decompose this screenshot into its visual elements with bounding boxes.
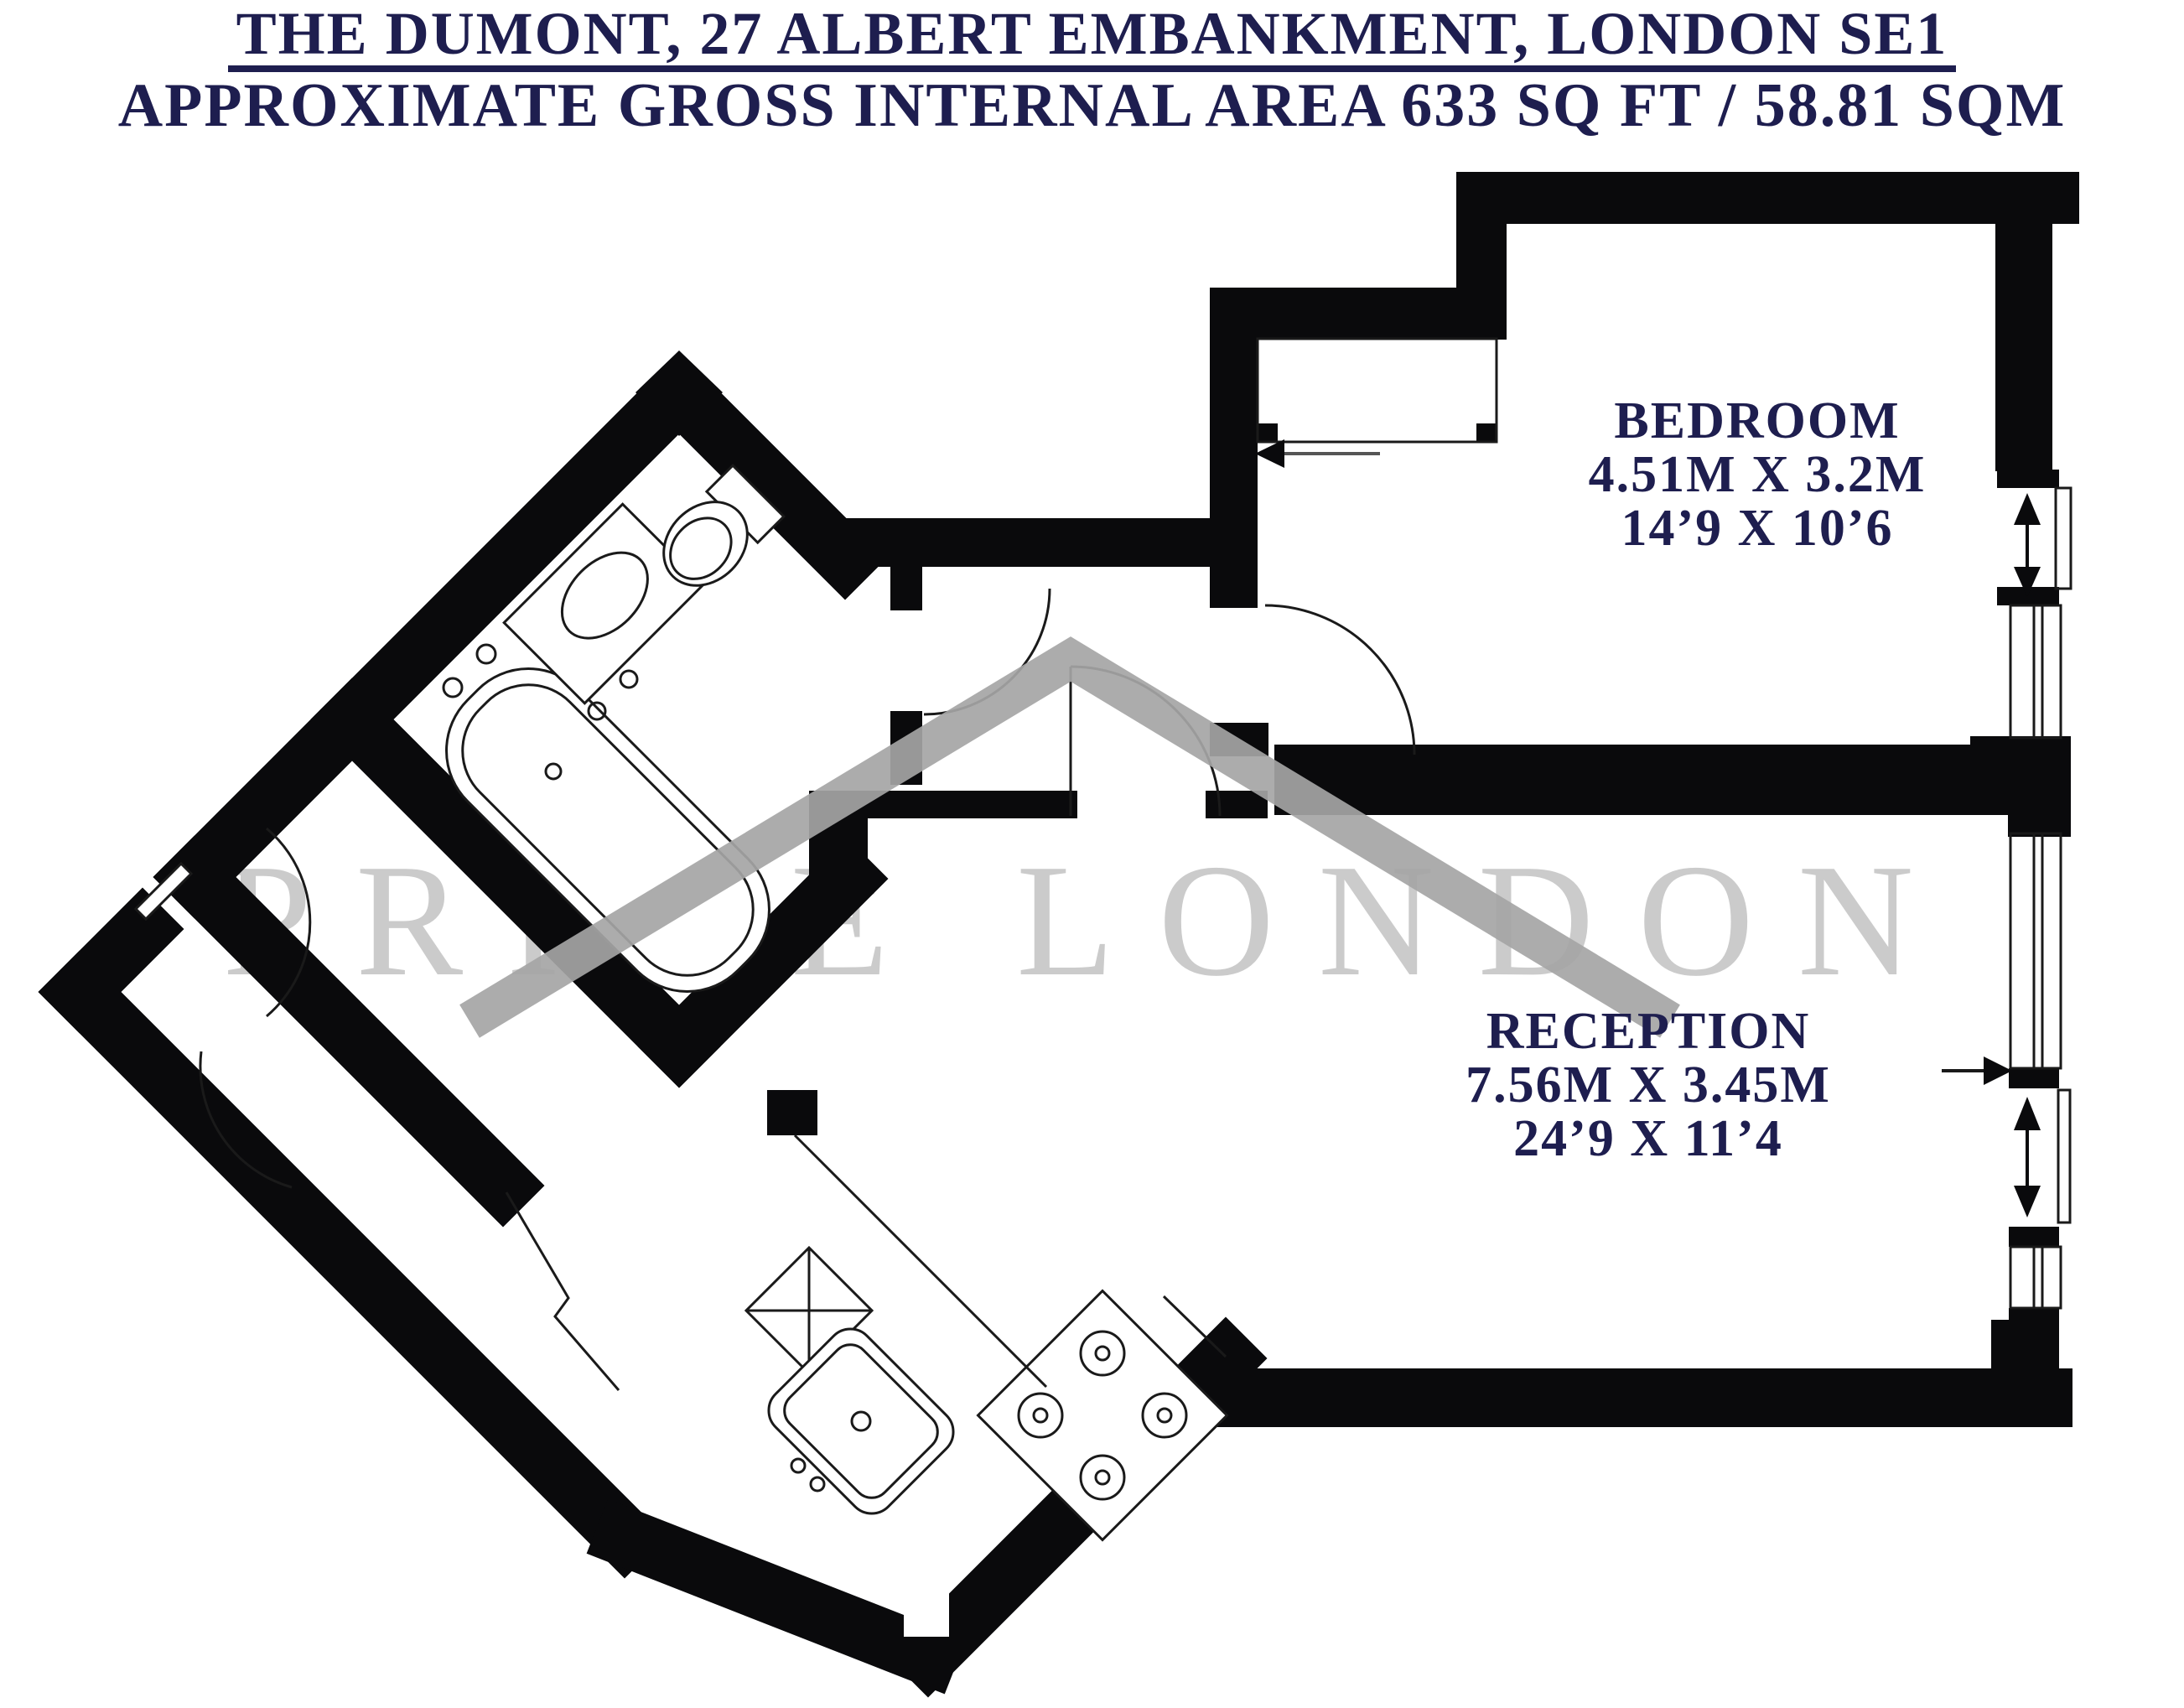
reception-label: RECEPTION: [1486, 1003, 1811, 1060]
reception-imperial: 24’9 X 11’4: [1513, 1110, 1783, 1167]
reception-metric: 7.56M X 3.45M: [1466, 1056, 1831, 1114]
slide-arrow-icon: [2014, 1097, 2041, 1130]
window: [2010, 605, 2061, 738]
slide-arrow-icon: [2014, 1186, 2041, 1217]
tap-icon: [477, 645, 495, 663]
floorplan-drawing: PRIME LONDON: [0, 0, 2184, 1708]
page-title: THE DUMONT, 27 ALBERT EMBANKMENT, LONDON…: [228, 3, 1957, 72]
bedroom-closet: [1258, 339, 1497, 442]
page-subtitle: APPROXIMATE GROSS INTERNAL AREA 633 SQ F…: [0, 74, 2184, 139]
window: [2010, 1247, 2061, 1308]
tap-icon: [791, 1459, 805, 1472]
floorplan-page: THE DUMONT, 27 ALBERT EMBANKMENT, LONDON…: [0, 0, 2184, 1708]
entry-arrow-icon: [1255, 439, 1284, 468]
bedroom-imperial: 14’9 X 10’6: [1621, 500, 1893, 557]
title-block: THE DUMONT, 27 ALBERT EMBANKMENT, LONDON…: [0, 3, 2184, 139]
kitchen-fixtures: [746, 1135, 1227, 1539]
tap-icon: [620, 671, 637, 688]
tap-icon: [811, 1477, 824, 1491]
wardrobe-folding-doors: [506, 1192, 619, 1390]
bedroom-label: BEDROOM: [1614, 392, 1900, 449]
sliding-window-pane: [2058, 1090, 2070, 1223]
bedroom-door-arc: [1265, 605, 1414, 755]
sliding-window-pane: [2056, 488, 2071, 589]
sink-icon: [759, 1319, 962, 1523]
hob-icon: [978, 1291, 1227, 1540]
tap-icon: [444, 678, 462, 697]
windows: [2010, 488, 2071, 1308]
entry-arrow-icon: [1984, 1056, 2012, 1085]
slide-arrow-icon: [2014, 493, 2041, 525]
bedroom-metric: 4.51M X 3.2M: [1589, 446, 1927, 503]
window: [2010, 833, 2061, 1068]
